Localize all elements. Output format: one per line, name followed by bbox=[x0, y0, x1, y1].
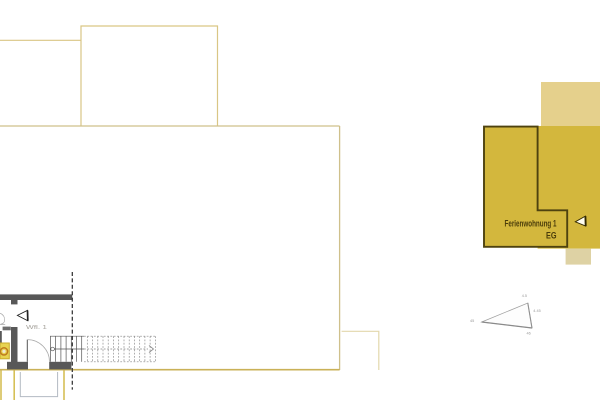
svg-text:EG: EG bbox=[546, 231, 557, 241]
svg-text:4.45: 4.45 bbox=[533, 309, 540, 313]
svg-text:45: 45 bbox=[470, 319, 474, 323]
svg-text:4.5: 4.5 bbox=[522, 294, 527, 298]
svg-text:Ferienwohnung 1: Ferienwohnung 1 bbox=[505, 218, 557, 228]
svg-text:Wfl. 1: Wfl. 1 bbox=[26, 325, 47, 331]
svg-text:46: 46 bbox=[527, 332, 531, 336]
